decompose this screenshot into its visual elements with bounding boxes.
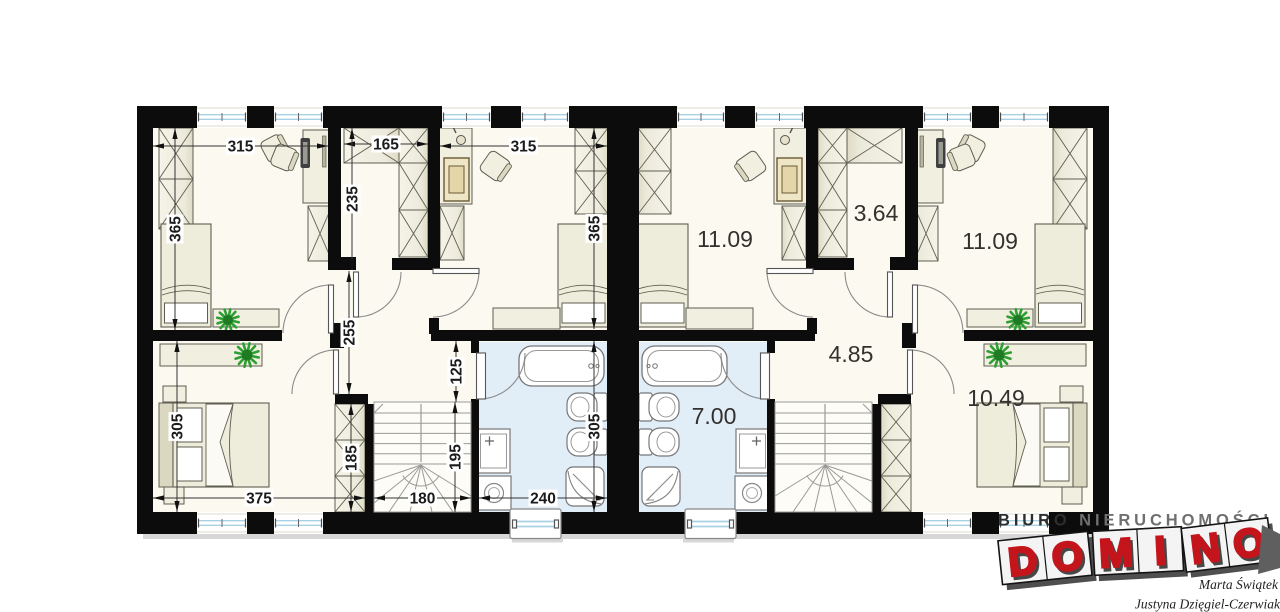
svg-text:255: 255 bbox=[342, 319, 359, 345]
svg-text:7.00: 7.00 bbox=[692, 403, 737, 429]
svg-text:185: 185 bbox=[344, 445, 361, 471]
svg-text:305: 305 bbox=[587, 413, 604, 439]
svg-text:Marta Świątek: Marta Świątek bbox=[1198, 577, 1279, 592]
svg-text:4.85: 4.85 bbox=[829, 341, 874, 367]
svg-text:3.64: 3.64 bbox=[854, 200, 899, 226]
svg-text:I: I bbox=[1154, 529, 1167, 574]
svg-text:10.49: 10.49 bbox=[967, 385, 1025, 411]
svg-text:235: 235 bbox=[345, 186, 362, 212]
svg-text:165: 165 bbox=[373, 137, 399, 154]
svg-text:O: O bbox=[1050, 534, 1086, 581]
svg-text:315: 315 bbox=[511, 139, 537, 156]
svg-text:365: 365 bbox=[168, 216, 185, 242]
svg-text:Justyna Dzięgiel-Czerwiak: Justyna Dzięgiel-Czerwiak bbox=[1135, 597, 1280, 612]
svg-text:305: 305 bbox=[170, 413, 187, 439]
svg-text:375: 375 bbox=[246, 491, 272, 508]
svg-text:125: 125 bbox=[449, 358, 466, 384]
svg-text:M: M bbox=[1098, 531, 1134, 577]
svg-text:180: 180 bbox=[410, 491, 436, 508]
svg-text:D: D bbox=[1006, 538, 1039, 585]
svg-text:240: 240 bbox=[530, 491, 556, 508]
svg-text:N: N bbox=[1189, 525, 1223, 572]
svg-text:195: 195 bbox=[448, 444, 465, 470]
svg-text:365: 365 bbox=[587, 215, 604, 241]
svg-text:315: 315 bbox=[228, 139, 254, 156]
svg-text:11.09: 11.09 bbox=[697, 226, 753, 252]
svg-text:11.09: 11.09 bbox=[962, 228, 1018, 254]
